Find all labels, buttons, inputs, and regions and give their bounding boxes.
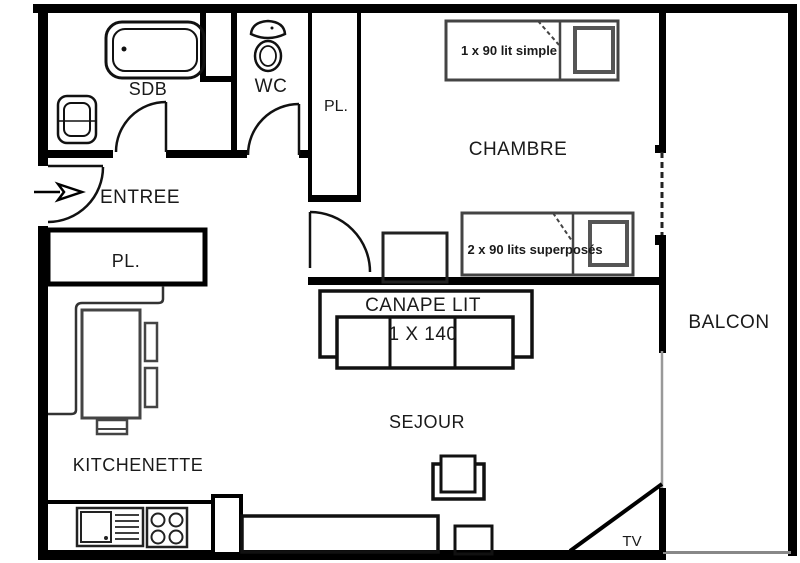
kitchen-table [82,310,140,418]
counter-top-edge [48,500,214,504]
bathtub [106,22,204,78]
hob-burner-2 [170,514,183,527]
bunk-beds-label: 2 x 90 lits superposés [467,242,602,257]
sdb-door [116,102,166,152]
wall-sdb-bottom-a [44,150,113,158]
wall-balcony-nub-1 [655,145,666,153]
wall-balcony-divider-mid [659,238,666,353]
washbasin-inner [64,103,90,136]
floor-plan: 1 x 90 lit simple 2 x 90 lits superposés… [0,0,800,563]
kitchen-chair-bottom [97,420,127,434]
armchair [433,456,484,499]
wc-door [248,104,299,155]
kitchen-chair-right-2 [145,368,157,407]
hob-burner-1 [152,514,165,527]
room-label-entree: ENTREE [100,187,180,208]
wall-right-outer [788,4,797,556]
bunk-beds-fold [553,213,572,241]
bunk-beds: 2 x 90 lits superposés [462,213,633,275]
sofa-bed-label: CANAPE LIT [365,295,481,316]
wall-closet-column-right [357,13,361,202]
chambre-dresser [383,233,447,282]
room-label-tv: TV [622,533,641,550]
toilet-bowl-inner [260,46,276,66]
hob-burner-3 [152,531,165,544]
wall-balcony-divider-top [659,13,666,152]
wall-sdb-wc-divider [231,13,237,158]
room-label-closet-top: PL. [324,98,348,115]
wall-balcony-divider-bottom [659,488,666,552]
tv-stand-diagonal [570,484,662,551]
room-label-sejour: SEJOUR [389,412,465,432]
armchair-seat [441,456,475,492]
entry-arrow [34,184,82,200]
washbasin [58,96,96,143]
single-bed: 1 x 90 lit simple [446,21,618,80]
toilet-tank-dot [271,27,274,30]
single-bed-fold [538,21,559,45]
room-label-sdb: SDB [129,79,168,99]
entry-arrow-head [58,184,82,200]
balcony-edge-bottom [663,551,791,554]
single-bed-pillow [575,28,613,72]
wall-closet-column-cap [308,195,361,202]
sofa-bed-size: 1 X 140 [389,324,458,345]
kitchen-chair-right-1 [145,323,157,361]
side-table [455,526,492,554]
wall-top [33,4,797,13]
chambre-door-swing [310,212,370,272]
room-label-kitchenette: KITCHENETTE [73,455,204,475]
sink-drain-dot [104,536,108,540]
kitchen-sink-unit [77,508,143,546]
single-bed-label: 1 x 90 lit simple [461,43,557,58]
room-label-closet-entry: PL. [112,251,141,271]
kitchen-partition-wall [213,496,241,554]
sink-drainboard-lines [115,515,139,539]
room-label-balcon: BALCON [688,312,769,333]
room-label-wc: WC [255,76,288,97]
kitchenette-area [48,286,241,554]
chambre-door [310,212,370,272]
hob-burner-4 [170,531,183,544]
toilet [251,21,285,71]
room-label-chambre: CHAMBRE [469,139,568,160]
sofa-bed: CANAPE LIT 1 X 140 [320,291,532,368]
wall-closet-column-left [308,13,312,202]
wall-chambre-sejour [308,277,666,285]
kitchen-hob [147,508,187,547]
wall-left-upper [38,4,48,166]
wc-door-swing [248,104,299,155]
bathtub-faucet [122,47,127,52]
sideboard [242,516,438,552]
sdb-door-swing [116,102,166,152]
toilet-tank [251,21,285,38]
